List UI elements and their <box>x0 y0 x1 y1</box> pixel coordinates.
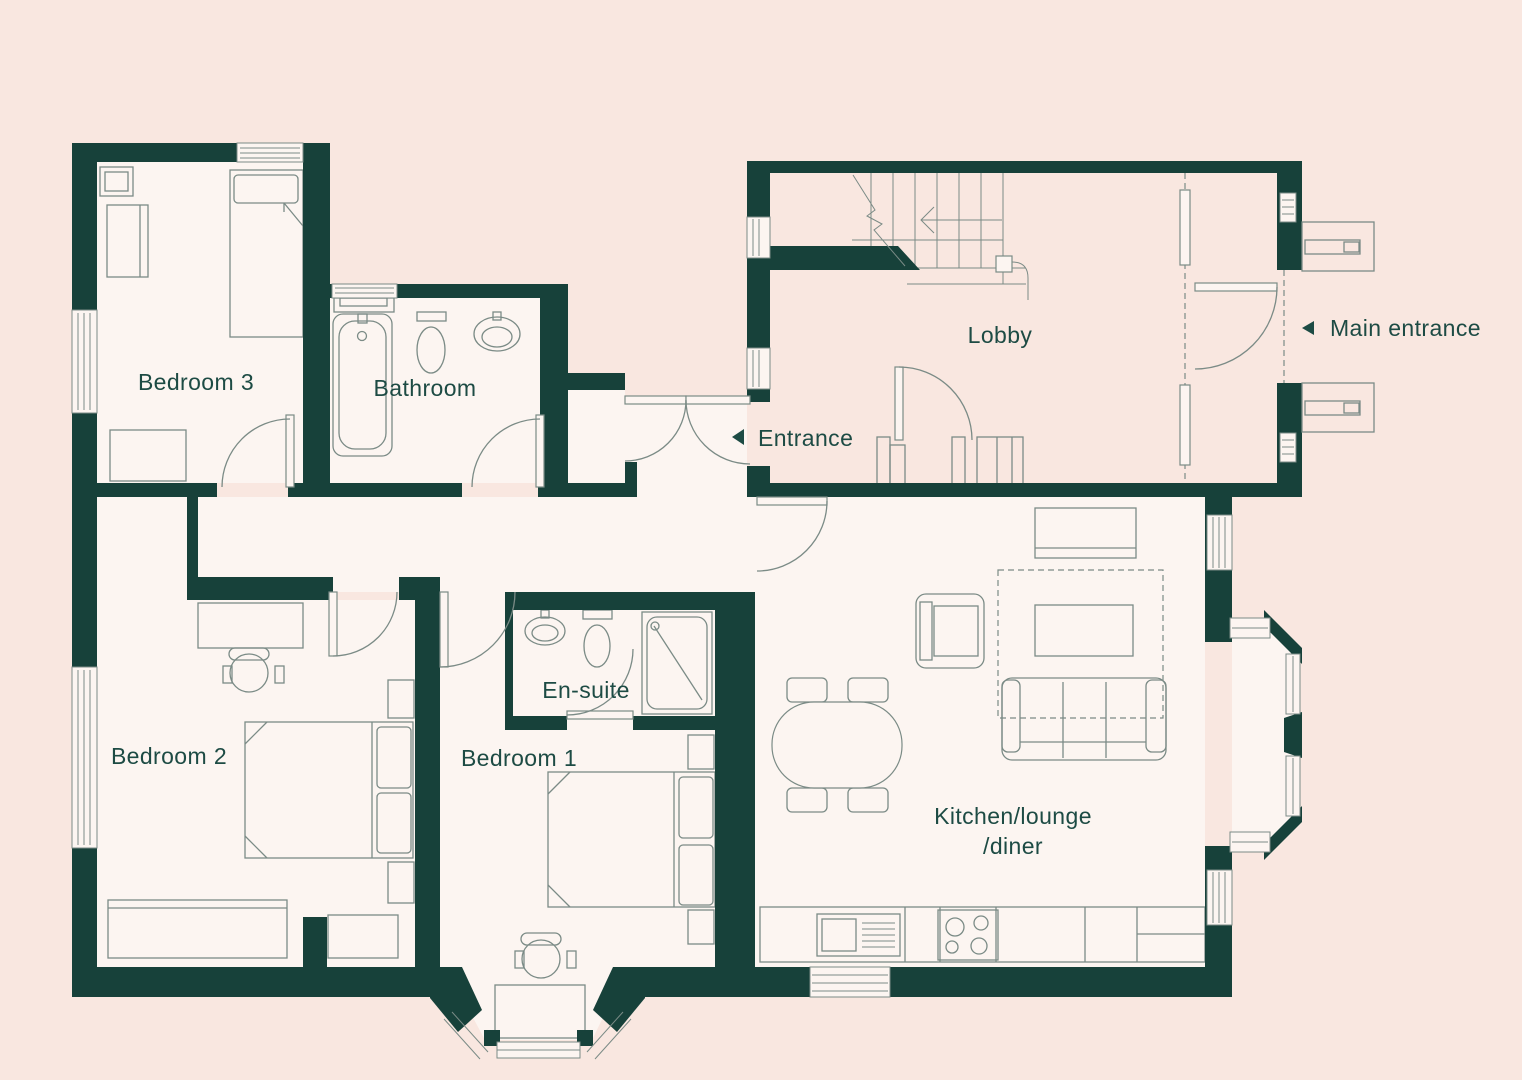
bathroom-label: Bathroom <box>374 375 477 401</box>
floor-plan-page: Bedroom 3 Bathroom Lobby En-suite Bedroo… <box>0 0 1522 1080</box>
lobby-cupboard-outline <box>890 445 905 487</box>
screen-panel <box>1180 385 1190 465</box>
lobby-label: Lobby <box>968 322 1033 348</box>
porch-step <box>1302 383 1374 432</box>
bedroom-2-alcove-floor <box>97 497 187 600</box>
door-leaf <box>567 711 633 719</box>
bedroom-3-label: Bedroom 3 <box>138 369 254 395</box>
bedroom-3-floor <box>97 162 303 483</box>
entrance-label: Entrance <box>758 425 853 451</box>
lobby-cupboard-outline <box>977 437 1023 487</box>
main-entrance-door-leaf <box>1195 283 1277 291</box>
bedroom-1-label: Bedroom 1 <box>461 745 577 771</box>
door-leaf <box>536 415 544 487</box>
door-leaf <box>757 497 827 505</box>
main-entrance-door-swing-arc <box>1195 287 1277 369</box>
ensuite-label: En-suite <box>542 677 630 703</box>
screen-panel <box>1180 190 1190 265</box>
floor-plan-drawing: Bedroom 3 Bathroom Lobby En-suite Bedroo… <box>0 0 1522 1080</box>
door-leaf <box>286 415 294 487</box>
kitchen-label-line2: /diner <box>983 833 1043 859</box>
window <box>810 967 890 997</box>
bedroom-2-label: Bedroom 2 <box>111 743 227 769</box>
vestibule-floor <box>568 390 747 497</box>
chimney-breast <box>303 917 327 967</box>
main-entrance-label: Main entrance <box>1330 315 1481 341</box>
newel-post-icon <box>996 256 1012 272</box>
main-entrance-arrow-icon <box>1302 321 1314 335</box>
door-leaf <box>895 367 903 440</box>
porch-step <box>1302 222 1374 271</box>
window <box>332 284 397 298</box>
dining-table-icon <box>772 702 902 788</box>
lobby-cupboard-outline <box>952 437 965 487</box>
entrance-door-leaf <box>686 396 750 404</box>
door-swing-arc <box>899 367 972 440</box>
staircase-icon <box>770 173 1028 300</box>
kitchen-label-line1: Kitchen/lounge <box>934 803 1092 829</box>
door-leaf <box>440 592 448 667</box>
door-leaf <box>625 396 686 404</box>
door-leaf <box>329 592 337 656</box>
lobby-cupboard-outline <box>877 437 890 487</box>
